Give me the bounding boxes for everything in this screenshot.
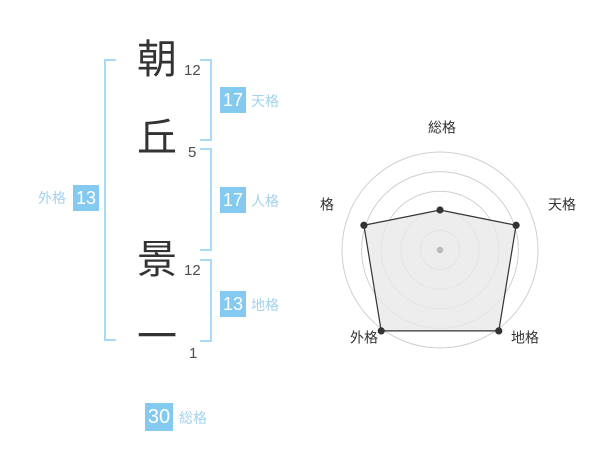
radar-axis-label: 地格: [511, 330, 539, 346]
radar-data-point: [512, 222, 519, 229]
kanji-character-4: 一: [133, 317, 181, 357]
gaikaku-badge: 13: [73, 185, 99, 211]
name-analysis-widget: 朝 丘 景 一 12 5 12 1 外格 13 17 天格 17 人格 13 地…: [0, 0, 600, 470]
gaikaku-bracket: [104, 59, 116, 341]
tenkaku-bracket: [200, 59, 212, 141]
jinkaku-bracket: [200, 148, 212, 251]
chikaku-label: 地格: [251, 298, 279, 312]
stroke-count-1: 12: [184, 63, 201, 78]
radar-data-polygon: [364, 210, 516, 331]
gaikaku-label: 外格: [22, 191, 66, 205]
radar-data-point: [495, 327, 502, 334]
tenkaku-label: 天格: [251, 94, 279, 108]
radar-axis-label: 天格: [548, 197, 576, 213]
kanji-character-1: 朝: [133, 40, 181, 80]
soukaku-badge: 30: [145, 403, 173, 431]
tenkaku-badge: 17: [220, 87, 246, 113]
radar-axis-label: 人格: [320, 197, 334, 213]
stroke-count-3: 12: [184, 263, 201, 278]
kanji-character-2: 丘: [133, 118, 181, 158]
radar-axis-label: 外格: [350, 330, 378, 346]
jinkaku-badge: 17: [220, 187, 246, 213]
radar-data-point: [360, 222, 367, 229]
stroke-count-2: 5: [188, 145, 196, 160]
radar-center-dot: [437, 247, 443, 253]
stroke-count-4: 1: [189, 346, 197, 361]
soukaku-label: 総格: [179, 411, 207, 425]
kanji-character-3: 景: [133, 240, 181, 280]
jinkaku-label: 人格: [251, 194, 279, 208]
radar-axis-label: 総格: [428, 120, 456, 136]
radar-chart: 総格天格地格外格人格: [320, 115, 580, 370]
radar-data-point: [436, 206, 443, 213]
radar-data-point: [378, 327, 385, 334]
chikaku-badge: 13: [220, 291, 246, 317]
chikaku-bracket: [200, 259, 212, 342]
